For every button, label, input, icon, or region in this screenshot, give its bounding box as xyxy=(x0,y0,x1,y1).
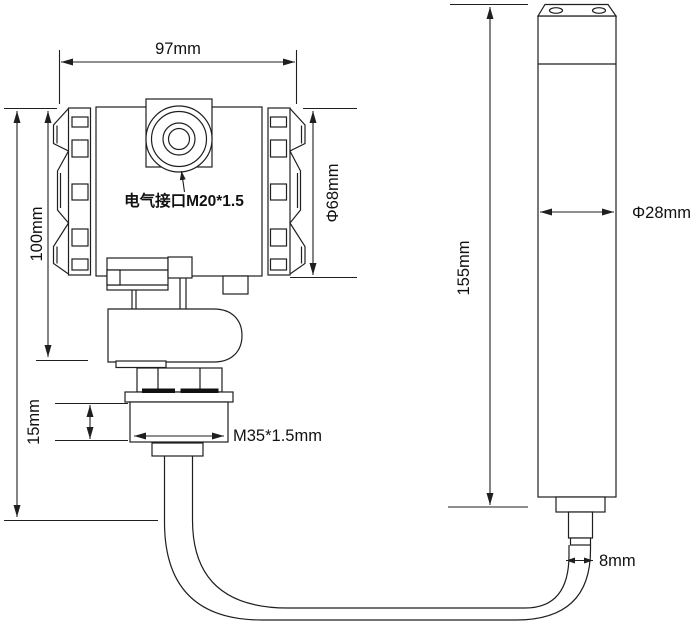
probe-step xyxy=(556,497,605,512)
flange-plate xyxy=(125,392,233,402)
cable-inner-edge xyxy=(193,456,570,608)
hex-section xyxy=(137,368,222,392)
label-probe-length: 155mm xyxy=(455,240,473,295)
probe-drawing xyxy=(538,5,616,546)
probe-top-hole-left xyxy=(550,8,563,14)
probe-body xyxy=(538,16,616,497)
dim-width-97mm: 97mm xyxy=(60,40,297,104)
label-width-97mm: 97mm xyxy=(155,40,201,58)
label-cable-diameter: 8mm xyxy=(599,552,636,570)
label-electrical-port: 电气接口M20*1.5 xyxy=(124,191,244,210)
drawing-canvas: 97mm 100mm Φ68mm 15mm M35* xyxy=(0,0,700,629)
label-gland-height: 15mm xyxy=(25,399,43,445)
dim-cable-diameter-8mm: 8mm xyxy=(566,552,636,570)
gasket-right xyxy=(181,389,219,394)
electrical-port-circle xyxy=(146,106,212,172)
transmitter-head-drawing xyxy=(54,99,591,620)
dim-gland-height-15mm: 15mm xyxy=(25,399,128,445)
probe-nipple xyxy=(569,512,593,538)
probe-cable-collar xyxy=(571,538,591,545)
washer xyxy=(152,443,203,456)
label-probe-diameter: Φ28mm xyxy=(632,204,691,222)
probe-top-hole-right xyxy=(593,8,606,14)
dim-probe-length-155mm: 155mm xyxy=(448,5,528,508)
label-thread: M35*1.5mm xyxy=(233,427,322,445)
dimension-drawing: 97mm 100mm Φ68mm 15mm M35* xyxy=(0,0,700,629)
gasket-left xyxy=(142,389,175,394)
capsule-ledge xyxy=(116,361,166,368)
label-height-100mm: 100mm xyxy=(28,206,46,261)
connection-capsule xyxy=(108,309,242,362)
label-housing-diameter: Φ68mm xyxy=(324,163,342,222)
